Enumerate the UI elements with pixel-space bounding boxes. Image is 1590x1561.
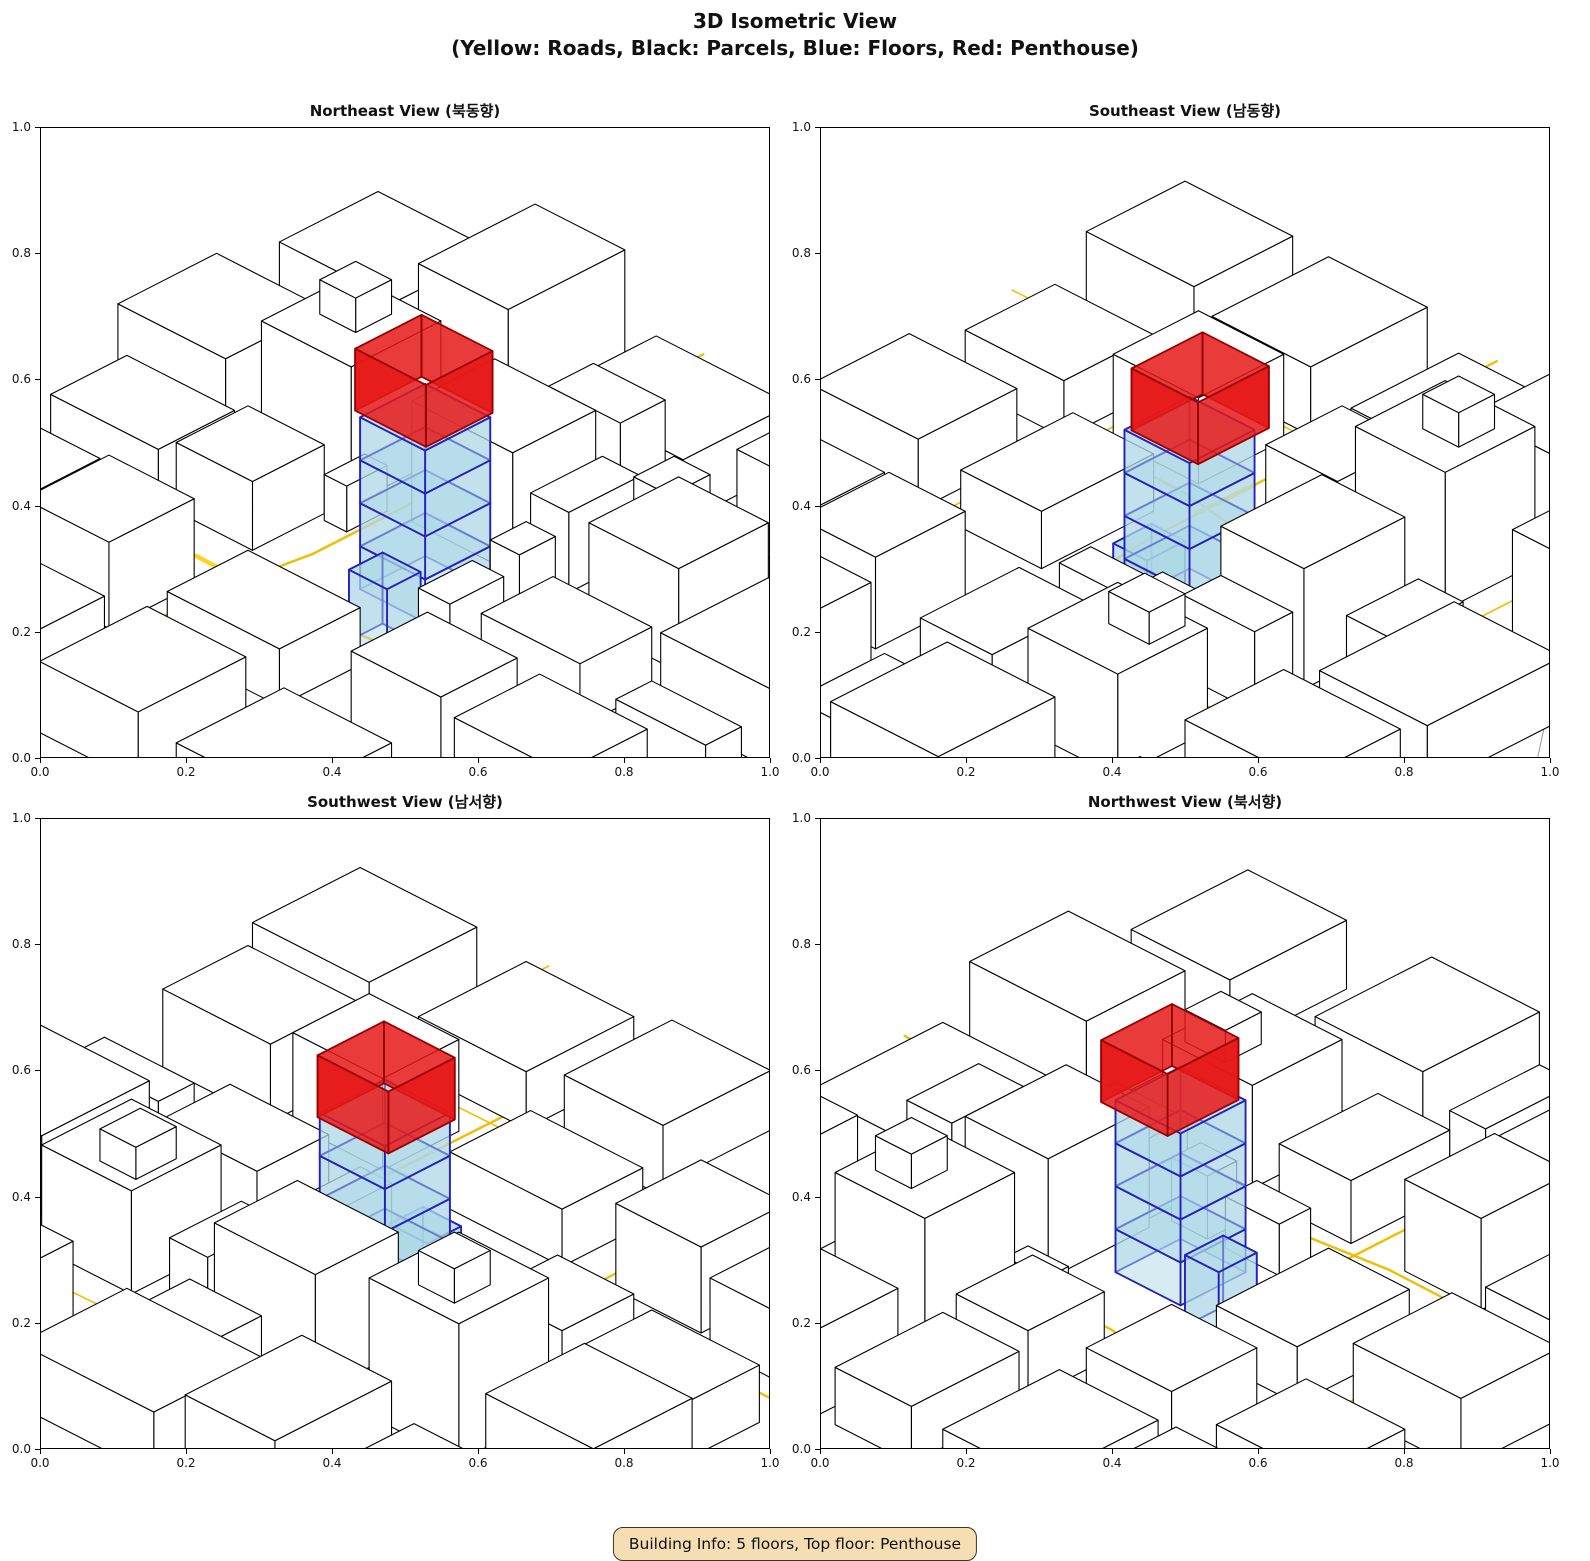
y-axis-tick-mark — [35, 944, 40, 945]
y-axis-tick-label: 0.6 — [12, 1063, 31, 1077]
subplot-title-northwest: Northwest View (북서향) — [820, 791, 1550, 818]
figure-canvas: { "figure": { "title_line1": "3D Isometr… — [0, 0, 1590, 1560]
plot-box-southwest — [40, 818, 770, 1449]
x-axis-tick-label: 0.0 — [30, 765, 49, 779]
y-axis-tick-mark — [815, 506, 820, 507]
y-axis-tick-label: 0.4 — [12, 499, 31, 513]
x-axis-tick-label: 0.6 — [468, 765, 487, 779]
y-axis-tick-label: 0.0 — [12, 1442, 31, 1456]
x-axis-tick-mark — [1258, 758, 1259, 763]
y-axis-tick-mark — [35, 1323, 40, 1324]
x-axis-tick-label: 0.4 — [322, 765, 341, 779]
x-axis-tick-mark — [1550, 758, 1551, 763]
y-axis-tick-mark — [35, 379, 40, 380]
y-axis-tick-mark — [35, 632, 40, 633]
scene-svg-northwest — [821, 819, 1549, 1448]
x-axis-tick-mark — [624, 758, 625, 763]
x-axis-tick-label: 1.0 — [1540, 1456, 1559, 1470]
y-axis-tick-label: 0.4 — [792, 499, 811, 513]
x-axis-tick-mark — [186, 1449, 187, 1454]
x-axis-tick-label: 0.2 — [176, 765, 195, 779]
buildings-layer — [41, 191, 769, 757]
y-axis-tick-mark — [815, 818, 820, 819]
x-axis-tick-mark — [1404, 1449, 1405, 1454]
x-axis-tick-mark — [1112, 758, 1113, 763]
y-axis-tick-label: 1.0 — [792, 120, 811, 134]
scene-svg-southwest — [41, 819, 769, 1448]
x-axis-tick-mark — [624, 1449, 625, 1454]
plot-box-southeast — [820, 127, 1550, 758]
y-axis-tick-label: 0.2 — [792, 1316, 811, 1330]
x-axis-tick-mark — [966, 758, 967, 763]
y-axis-tick-label: 0.6 — [792, 372, 811, 386]
y-axis-tick-mark — [815, 632, 820, 633]
y-axis-tick-label: 0.2 — [792, 625, 811, 639]
x-axis-tick-label: 0.0 — [810, 765, 829, 779]
x-axis-tick-mark — [770, 1449, 771, 1454]
y-axis-tick-label: 1.0 — [12, 120, 31, 134]
y-axis-tick-label: 0.8 — [792, 937, 811, 951]
buildings-layer — [821, 181, 1549, 757]
x-axis-tick-mark — [478, 1449, 479, 1454]
y-axis-tick-label: 0.2 — [12, 1316, 31, 1330]
x-axis-tick-mark — [820, 758, 821, 763]
scene-svg-southeast — [821, 128, 1549, 757]
y-axis-tick-label: 0.2 — [12, 625, 31, 639]
y-axis-tick-label: 0.0 — [792, 1442, 811, 1456]
subplot-title-southwest: Southwest View (남서향) — [40, 791, 770, 818]
subplot-northeast: Northeast View (북동향) 0.00.00.20.20.40.40… — [40, 100, 770, 758]
y-axis-tick-label: 0.6 — [792, 1063, 811, 1077]
x-axis-tick-label: 1.0 — [1540, 765, 1559, 779]
buildings-layer — [41, 868, 769, 1448]
x-axis-tick-label: 0.6 — [1248, 1456, 1267, 1470]
x-axis-tick-mark — [1112, 1449, 1113, 1454]
y-axis-tick-mark — [35, 253, 40, 254]
x-axis-tick-mark — [1404, 758, 1405, 763]
x-axis-tick-mark — [332, 758, 333, 763]
x-axis-tick-mark — [332, 1449, 333, 1454]
y-axis-tick-mark — [815, 379, 820, 380]
y-axis-tick-mark — [815, 1323, 820, 1324]
x-axis-tick-mark — [1550, 1449, 1551, 1454]
x-axis-tick-label: 0.2 — [956, 1456, 975, 1470]
x-axis-tick-mark — [966, 1449, 967, 1454]
y-axis-tick-mark — [815, 1197, 820, 1198]
figure-title-line1: 3D Isometric View — [0, 8, 1590, 35]
plot-area-southeast: 0.00.00.20.20.40.40.60.60.80.81.01.0 — [820, 127, 1550, 758]
y-axis-tick-label: 0.8 — [12, 937, 31, 951]
buildings-layer — [821, 870, 1549, 1448]
y-axis-tick-label: 0.4 — [12, 1190, 31, 1204]
plot-area-northwest: 0.00.00.20.20.40.40.60.60.80.81.01.0 — [820, 818, 1550, 1449]
y-axis-tick-label: 0.6 — [12, 372, 31, 386]
x-axis-tick-label: 0.4 — [322, 1456, 341, 1470]
x-axis-tick-mark — [40, 1449, 41, 1454]
y-axis-tick-label: 0.8 — [12, 246, 31, 260]
y-axis-tick-label: 0.4 — [792, 1190, 811, 1204]
x-axis-tick-mark — [478, 758, 479, 763]
subplot-southwest: Southwest View (남서향) 0.00.00.20.20.40.40… — [40, 791, 770, 1449]
x-axis-tick-label: 0.4 — [1102, 1456, 1121, 1470]
x-axis-tick-mark — [820, 1449, 821, 1454]
x-axis-tick-label: 0.2 — [176, 1456, 195, 1470]
x-axis-tick-mark — [40, 758, 41, 763]
y-axis-tick-mark — [815, 253, 820, 254]
x-axis-tick-label: 1.0 — [760, 765, 779, 779]
building-info-box: Building Info: 5 floors, Top floor: Pent… — [613, 1527, 977, 1561]
y-axis-tick-mark — [35, 1070, 40, 1071]
y-axis-tick-label: 0.0 — [792, 751, 811, 765]
y-axis-tick-label: 1.0 — [792, 811, 811, 825]
scene-svg-northeast — [41, 128, 769, 757]
x-axis-tick-label: 0.0 — [810, 1456, 829, 1470]
x-axis-tick-label: 0.8 — [1394, 1456, 1413, 1470]
y-axis-tick-mark — [815, 944, 820, 945]
subplot-southeast: Southeast View (남동향) 0.00.00.20.20.40.40… — [820, 100, 1550, 758]
x-axis-tick-label: 0.8 — [614, 765, 633, 779]
y-axis-tick-mark — [35, 1197, 40, 1198]
y-axis-tick-label: 0.8 — [792, 246, 811, 260]
plot-box-northeast — [40, 127, 770, 758]
x-axis-tick-label: 0.8 — [1394, 765, 1413, 779]
x-axis-tick-label: 1.0 — [760, 1456, 779, 1470]
x-axis-tick-mark — [186, 758, 187, 763]
figure-title: 3D Isometric View (Yellow: Roads, Black:… — [0, 8, 1590, 62]
x-axis-tick-label: 0.2 — [956, 765, 975, 779]
subplot-title-southeast: Southeast View (남동향) — [820, 100, 1550, 127]
y-axis-tick-mark — [35, 127, 40, 128]
subplot-title-northeast: Northeast View (북동향) — [40, 100, 770, 127]
plot-box-northwest — [820, 818, 1550, 1449]
plot-area-southwest: 0.00.00.20.20.40.40.60.60.80.81.01.0 — [40, 818, 770, 1449]
x-axis-tick-label: 0.4 — [1102, 765, 1121, 779]
x-axis-tick-label: 0.6 — [468, 1456, 487, 1470]
y-axis-tick-mark — [815, 1070, 820, 1071]
y-axis-tick-label: 0.0 — [12, 751, 31, 765]
x-axis-tick-mark — [1258, 1449, 1259, 1454]
x-axis-tick-label: 0.0 — [30, 1456, 49, 1470]
subplot-northwest: Northwest View (북서향) 0.00.00.20.20.40.40… — [820, 791, 1550, 1449]
y-axis-tick-mark — [35, 818, 40, 819]
y-axis-tick-label: 1.0 — [12, 811, 31, 825]
y-axis-tick-mark — [815, 127, 820, 128]
x-axis-tick-label: 0.8 — [614, 1456, 633, 1470]
y-axis-tick-mark — [35, 506, 40, 507]
plot-area-northeast: 0.00.00.20.20.40.40.60.60.80.81.01.0 — [40, 127, 770, 758]
figure-title-line2: (Yellow: Roads, Black: Parcels, Blue: Fl… — [0, 35, 1590, 62]
x-axis-tick-mark — [770, 758, 771, 763]
x-axis-tick-label: 0.6 — [1248, 765, 1267, 779]
